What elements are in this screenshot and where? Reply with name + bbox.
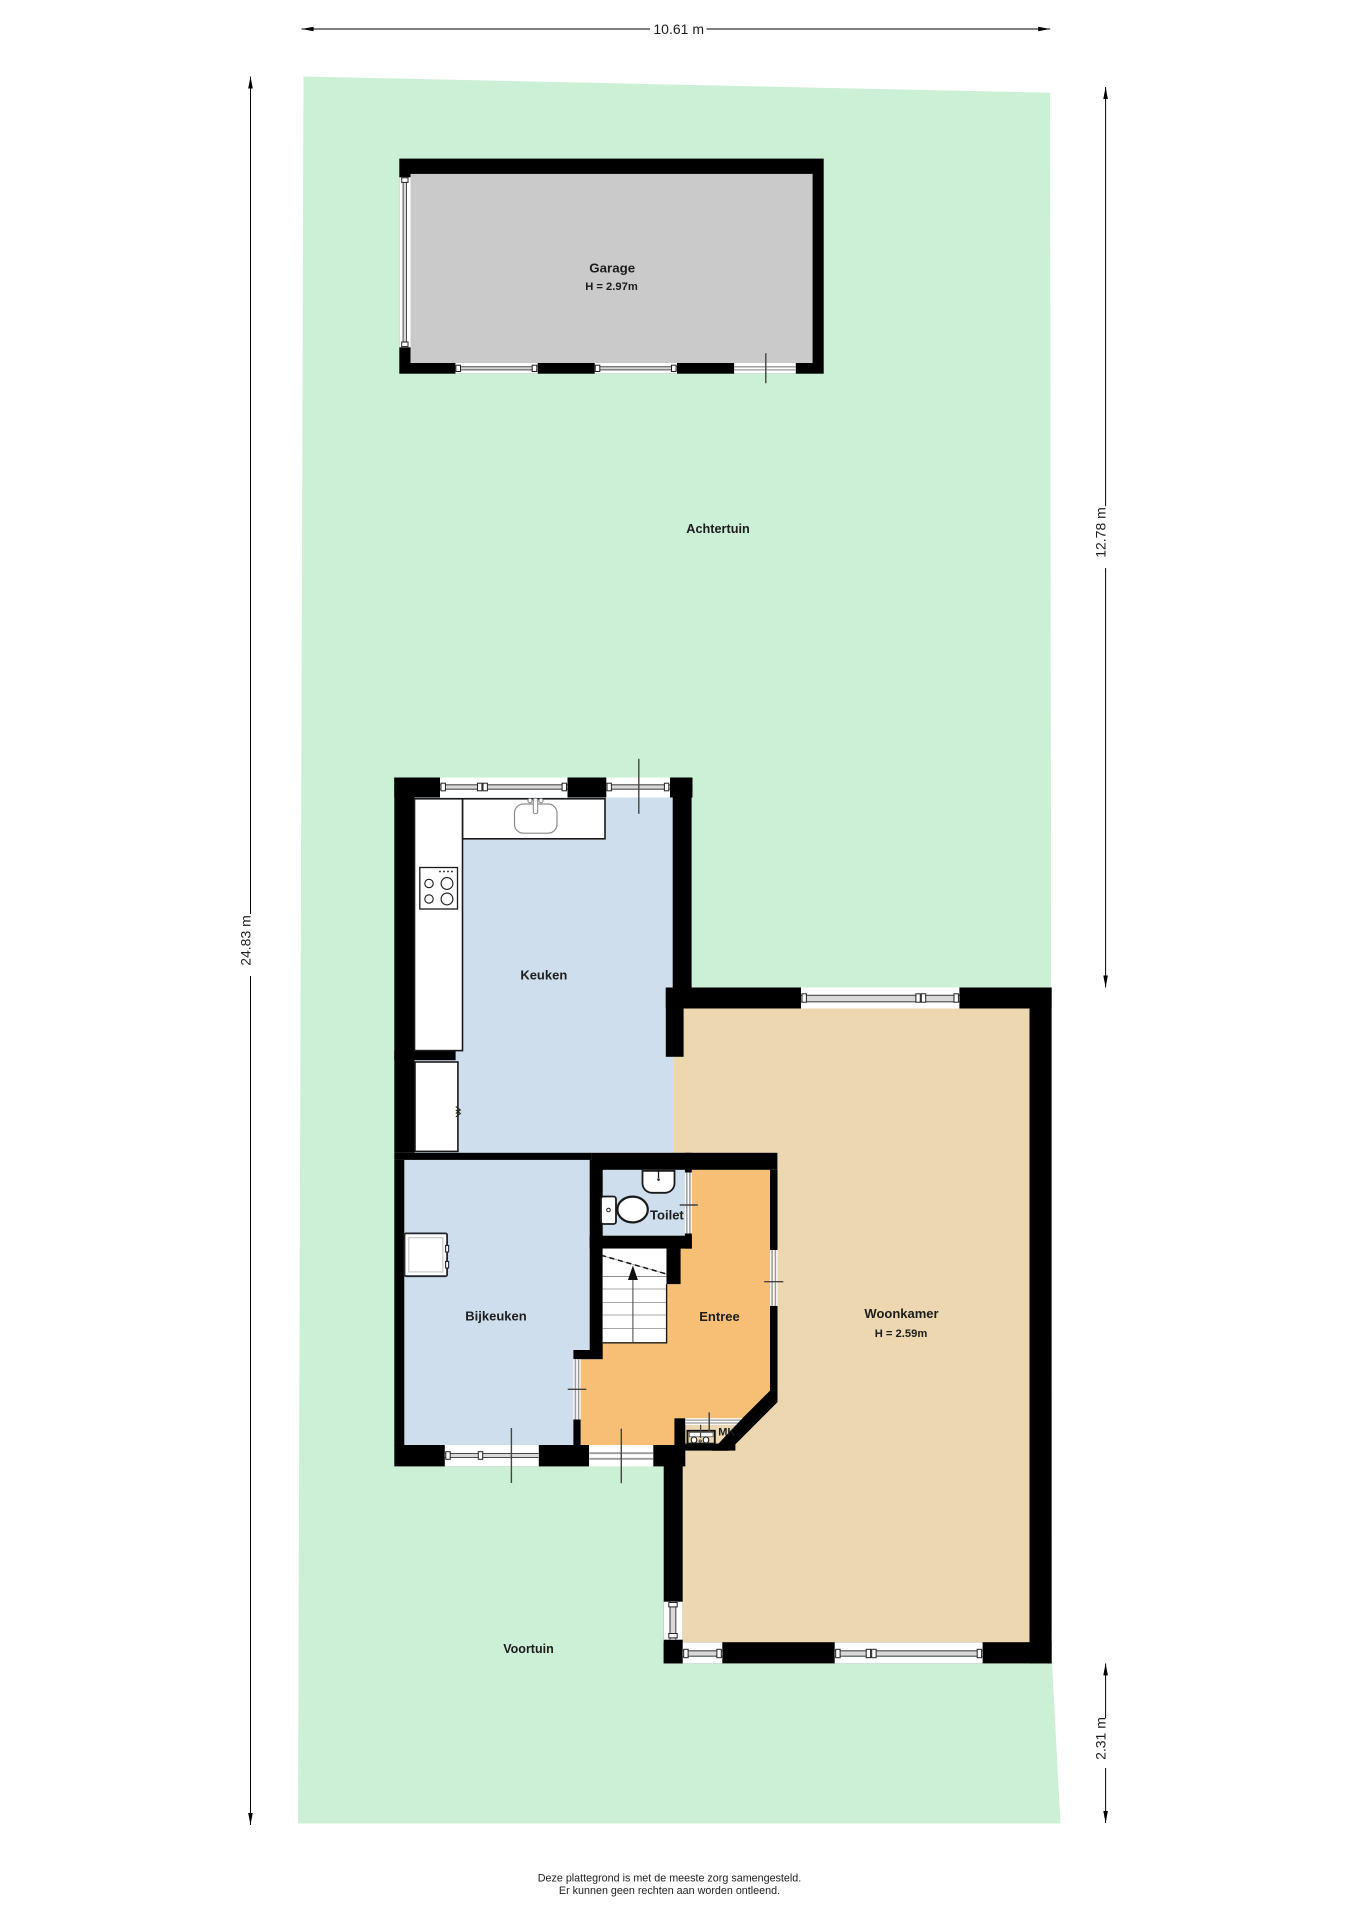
svg-text:24.83 m: 24.83 m bbox=[238, 915, 254, 966]
svg-text:Toilet: Toilet bbox=[650, 1207, 684, 1222]
svg-text:Er kunnen geen rechten aan wor: Er kunnen geen rechten aan worden ontlee… bbox=[559, 1885, 780, 1897]
svg-text:H = 2.59m: H = 2.59m bbox=[875, 1328, 928, 1340]
svg-text:Garage: Garage bbox=[589, 261, 635, 276]
svg-text:MK: MK bbox=[718, 1426, 735, 1438]
svg-text:Achtertuin: Achtertuin bbox=[686, 522, 749, 536]
svg-text:2.31 m: 2.31 m bbox=[1093, 1717, 1109, 1760]
svg-text:12.78 m: 12.78 m bbox=[1093, 507, 1109, 558]
svg-text:Keuken: Keuken bbox=[520, 968, 567, 983]
svg-text:Woonkamer: Woonkamer bbox=[864, 1306, 938, 1321]
svg-text:10.61 m: 10.61 m bbox=[653, 21, 704, 37]
svg-text:Bijkeuken: Bijkeuken bbox=[465, 1309, 526, 1324]
svg-text:Voortuin: Voortuin bbox=[503, 1642, 553, 1656]
svg-text:Deze plattegrond is met de mee: Deze plattegrond is met de meeste zorg s… bbox=[538, 1873, 802, 1885]
svg-text:Entree: Entree bbox=[699, 1309, 739, 1324]
svg-text:H = 2.97m: H = 2.97m bbox=[585, 281, 638, 293]
